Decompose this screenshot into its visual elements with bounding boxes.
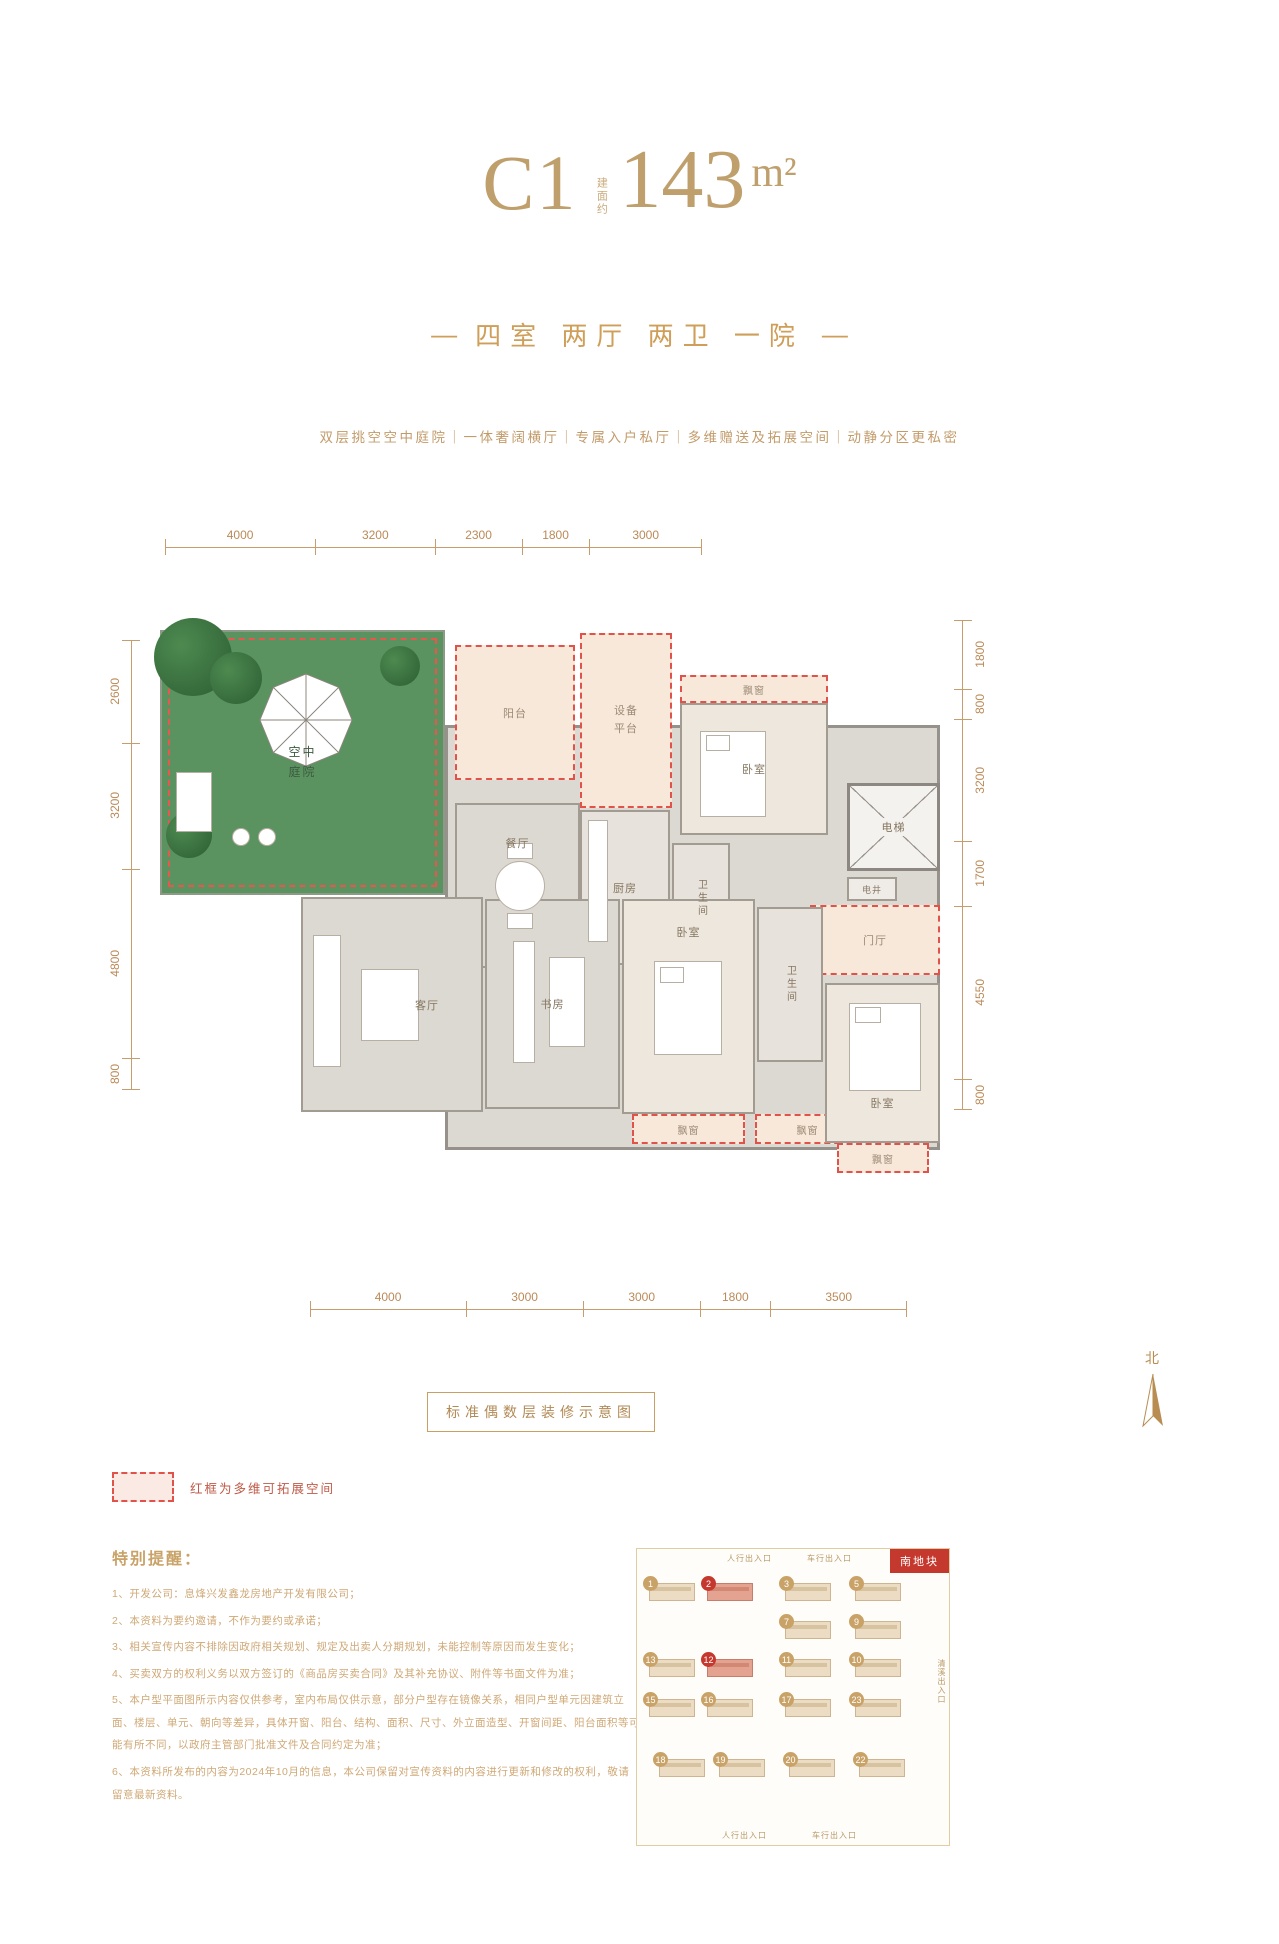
sofa-icon xyxy=(313,935,341,1067)
room-bathroom-2: 卫生间 xyxy=(757,907,823,1062)
building-number: 16 xyxy=(701,1692,716,1707)
dim-chain-top: 4000 3200 2300 1800 3000 xyxy=(165,528,702,548)
dim-label: 1800 xyxy=(973,641,987,668)
dim-segment: 4000 xyxy=(165,528,315,548)
building-number: 18 xyxy=(653,1752,668,1767)
building-13: 13 xyxy=(649,1659,695,1677)
room-label: 餐厅 xyxy=(506,835,530,851)
dim-label: 4550 xyxy=(973,979,987,1006)
dim-segment: 800 xyxy=(962,689,996,720)
room-bay-window-3: 飘窗 xyxy=(837,1143,929,1173)
building-number: 17 xyxy=(779,1692,794,1707)
dim-label: 3000 xyxy=(632,528,659,542)
building-number: 5 xyxy=(849,1576,864,1591)
dim-segment: 3000 xyxy=(466,1290,583,1310)
entrance-label-right: 清溪出入口 xyxy=(936,1659,947,1704)
building-17: 17 xyxy=(785,1699,831,1717)
dim-segment: 3200 xyxy=(962,719,996,841)
room-bedroom-1: 卧室 xyxy=(680,703,828,835)
building-number: 2 xyxy=(701,1576,716,1591)
dim-segment: 1800 xyxy=(700,1290,770,1310)
dim-label: 800 xyxy=(108,1064,122,1084)
dim-segment: 800 xyxy=(98,1058,132,1090)
building-number: 12 xyxy=(701,1652,716,1667)
building-23: 23 xyxy=(855,1699,901,1717)
dim-label: 2300 xyxy=(465,528,492,542)
tree-icon xyxy=(380,646,420,686)
dim-label: 4800 xyxy=(108,950,122,977)
feature-line: 双层挑空空中庭院｜一体奢阔横厅｜专属入户私厅｜多维赠送及拓展空间｜动静分区更私密 xyxy=(0,426,1279,446)
page-title: C1 建面约 143 m² xyxy=(0,138,1279,222)
pillow-icon xyxy=(706,735,730,751)
pillow-icon xyxy=(660,967,684,983)
floorplan-area: 4000 3200 2300 1800 3000 2600 3200 4800 … xyxy=(0,520,1279,1350)
notes-title: 特别提醒： xyxy=(112,1545,640,1569)
coffee-table-icon xyxy=(361,969,419,1041)
legend-text: 红框为多维可拓展空间 xyxy=(190,1478,335,1497)
dim-segment: 4800 xyxy=(98,869,132,1058)
special-notes: 特别提醒： 1、开发公司：息烽兴发鑫龙房地产开发有限公司； 2、本资料为要约邀请… xyxy=(112,1545,640,1810)
sofa-icon xyxy=(176,772,212,832)
dim-label: 800 xyxy=(973,1085,987,1105)
entrance-label-top-left: 人行出入口 xyxy=(727,1553,772,1564)
building-11: 11 xyxy=(785,1659,831,1677)
room-label: 空中庭院 xyxy=(288,743,317,781)
room-label: 飘窗 xyxy=(678,1122,700,1137)
bookshelf-icon xyxy=(513,941,535,1063)
room-label: 客厅 xyxy=(415,997,439,1013)
building-20: 20 xyxy=(789,1759,835,1777)
dim-segment: 800 xyxy=(962,1079,996,1110)
dim-label: 4000 xyxy=(375,1290,402,1304)
building-number: 9 xyxy=(849,1614,864,1629)
plan-canvas: 空中庭院 阳台 设备平台 飘窗 卧室 电梯 xyxy=(155,605,945,1230)
building-number: 13 xyxy=(643,1652,658,1667)
area-prefix-label: 建面约 xyxy=(593,177,609,216)
room-label: 门厅 xyxy=(863,932,887,948)
building-7: 7 xyxy=(785,1621,831,1639)
north-label: 北 xyxy=(1145,1348,1161,1368)
dim-segment: 3000 xyxy=(583,1290,700,1310)
room-label: 厨房 xyxy=(613,880,637,896)
area-unit: m² xyxy=(751,152,796,194)
building-number: 3 xyxy=(779,1576,794,1591)
stool-icon xyxy=(232,828,250,846)
dim-label: 3000 xyxy=(628,1290,655,1304)
room-bay-window-1: 飘窗 xyxy=(680,675,828,703)
dining-table-icon xyxy=(495,861,545,911)
room-bedroom-2: 卧室 xyxy=(622,899,755,1114)
building-15: 15 xyxy=(649,1699,695,1717)
building-number: 20 xyxy=(783,1752,798,1767)
room-label: 卫生间 xyxy=(694,879,709,918)
legend-red-box-icon xyxy=(112,1472,174,1502)
site-plan: 南地块 人行出入口 车行出入口 清溪出入口 人行出入口 车行出入口 1 2 3 … xyxy=(636,1548,950,1846)
dim-segment: 3200 xyxy=(315,528,435,548)
entrance-label-bottom-right: 车行出入口 xyxy=(812,1830,857,1841)
dim-segment: 3000 xyxy=(589,528,702,548)
room-label: 卧室 xyxy=(677,924,701,940)
building-number: 1 xyxy=(643,1576,658,1591)
building-2-highlighted: 2 xyxy=(707,1583,753,1601)
building-18: 18 xyxy=(659,1759,705,1777)
note-item: 4、买卖双方的权利义务以双方签订的《商品房买卖合同》及其补充协议、附件等书面文件… xyxy=(112,1663,640,1686)
building-12-highlighted: 12 xyxy=(707,1659,753,1677)
room-balcony: 阳台 xyxy=(455,645,575,780)
dim-chain-bottom: 4000 3000 3000 1800 3500 xyxy=(310,1290,907,1310)
room-label: 电井 xyxy=(862,883,882,896)
building-10: 10 xyxy=(855,1659,901,1677)
dim-label: 3500 xyxy=(825,1290,852,1304)
dim-label: 3200 xyxy=(973,767,987,794)
room-label: 飘窗 xyxy=(797,1122,819,1137)
dim-chain-right: 1800 800 3200 1700 4550 800 xyxy=(962,620,996,1110)
dim-label: 800 xyxy=(973,694,987,714)
note-item: 5、本户型平面图所示内容仅供参考，室内布局仅供示意，部分户型存在镜像关系，相同户… xyxy=(112,1689,640,1757)
room-living: 客厅 xyxy=(301,897,483,1112)
building-16: 16 xyxy=(707,1699,753,1717)
stool-icon xyxy=(258,828,276,846)
dim-segment: 2300 xyxy=(435,528,521,548)
dim-label: 1800 xyxy=(542,528,569,542)
dim-segment: 4000 xyxy=(310,1290,466,1310)
dim-segment: 3500 xyxy=(770,1290,907,1310)
dim-label: 4000 xyxy=(227,528,254,542)
legend: 红框为多维可拓展空间 xyxy=(112,1472,335,1502)
room-label: 飘窗 xyxy=(743,682,765,697)
dim-segment: 4550 xyxy=(962,906,996,1080)
room-label: 设备平台 xyxy=(613,703,639,738)
dim-segment: 1800 xyxy=(522,528,590,548)
building-number: 11 xyxy=(779,1652,794,1667)
building-number: 10 xyxy=(849,1652,864,1667)
unit-code: C1 xyxy=(482,144,577,222)
building-5: 5 xyxy=(855,1583,901,1601)
subtitle: — 四室 两厅 两卫 一院 — xyxy=(0,316,1279,353)
plan-caption: 标准偶数层装修示意图 xyxy=(427,1392,655,1432)
room-equipment-platform: 设备平台 xyxy=(580,633,672,808)
room-label: 飘窗 xyxy=(872,1151,894,1166)
room-label: 卧室 xyxy=(871,1095,895,1111)
dim-label: 1800 xyxy=(722,1290,749,1304)
building-22: 22 xyxy=(859,1759,905,1777)
dim-segment: 3200 xyxy=(98,743,132,869)
room-courtyard: 空中庭院 xyxy=(160,630,445,895)
subtitle-text: 四室 两厅 两卫 一院 xyxy=(475,316,804,353)
room-label: 卫生间 xyxy=(783,965,798,1004)
kitchen-counter-icon xyxy=(588,820,608,942)
chair-icon xyxy=(507,913,533,929)
dim-segment: 2600 xyxy=(98,640,132,743)
dim-label: 3000 xyxy=(511,1290,538,1304)
dim-label: 3200 xyxy=(108,792,122,819)
building-number: 23 xyxy=(849,1692,864,1707)
subtitle-dash-right: — xyxy=(822,319,848,350)
dim-segment: 1700 xyxy=(962,841,996,906)
dim-label: 2600 xyxy=(108,678,122,705)
building-number: 19 xyxy=(713,1752,728,1767)
building-3: 3 xyxy=(785,1583,831,1601)
room-label: 书房 xyxy=(541,996,565,1012)
room-foyer: 门厅 xyxy=(810,905,940,975)
dim-label: 3200 xyxy=(362,528,389,542)
building-number: 22 xyxy=(853,1752,868,1767)
floorplan-page: C1 建面约 143 m² — 四室 两厅 两卫 一院 — 双层挑空空中庭院｜一… xyxy=(0,0,1279,1944)
dim-chain-left: 2600 3200 4800 800 xyxy=(98,640,132,1090)
note-item: 1、开发公司：息烽兴发鑫龙房地产开发有限公司； xyxy=(112,1583,640,1606)
room-bay-window-2: 飘窗 xyxy=(632,1114,745,1144)
building-number: 15 xyxy=(643,1692,658,1707)
building-1: 1 xyxy=(649,1583,695,1601)
plot-label: 南地块 xyxy=(890,1549,949,1573)
room-label: 阳台 xyxy=(503,705,527,721)
room-label: 电梯 xyxy=(879,818,909,836)
room-label: 卧室 xyxy=(742,761,766,777)
dim-label: 1700 xyxy=(973,860,987,887)
note-item: 6、本资料所发布的内容为2024年10月的信息，本公司保留对宣传资料的内容进行更… xyxy=(112,1761,640,1806)
north-indicator: 北 xyxy=(1118,1348,1188,1434)
subtitle-dash-left: — xyxy=(431,319,457,350)
room-elevator: 电梯 xyxy=(847,783,940,871)
pillow-icon xyxy=(855,1007,881,1023)
note-item: 3、相关宣传内容不排除因政府相关规划、规定及出卖人分期规划，未能控制等原因而发生… xyxy=(112,1636,640,1659)
note-item: 2、本资料为要约邀请，不作为要约或承诺； xyxy=(112,1610,640,1633)
room-electric-shaft: 电井 xyxy=(847,877,897,901)
entrance-label-top-right: 车行出入口 xyxy=(807,1553,852,1564)
building-9: 9 xyxy=(855,1621,901,1639)
building-19: 19 xyxy=(719,1759,765,1777)
north-arrow-icon xyxy=(1130,1368,1176,1434)
dim-segment: 1800 xyxy=(962,620,996,689)
area-value: 143 xyxy=(619,138,745,222)
building-number: 7 xyxy=(779,1614,794,1629)
room-bedroom-3: 卧室 xyxy=(825,983,940,1143)
entrance-label-bottom-left: 人行出入口 xyxy=(722,1830,767,1841)
tree-icon xyxy=(210,652,262,704)
